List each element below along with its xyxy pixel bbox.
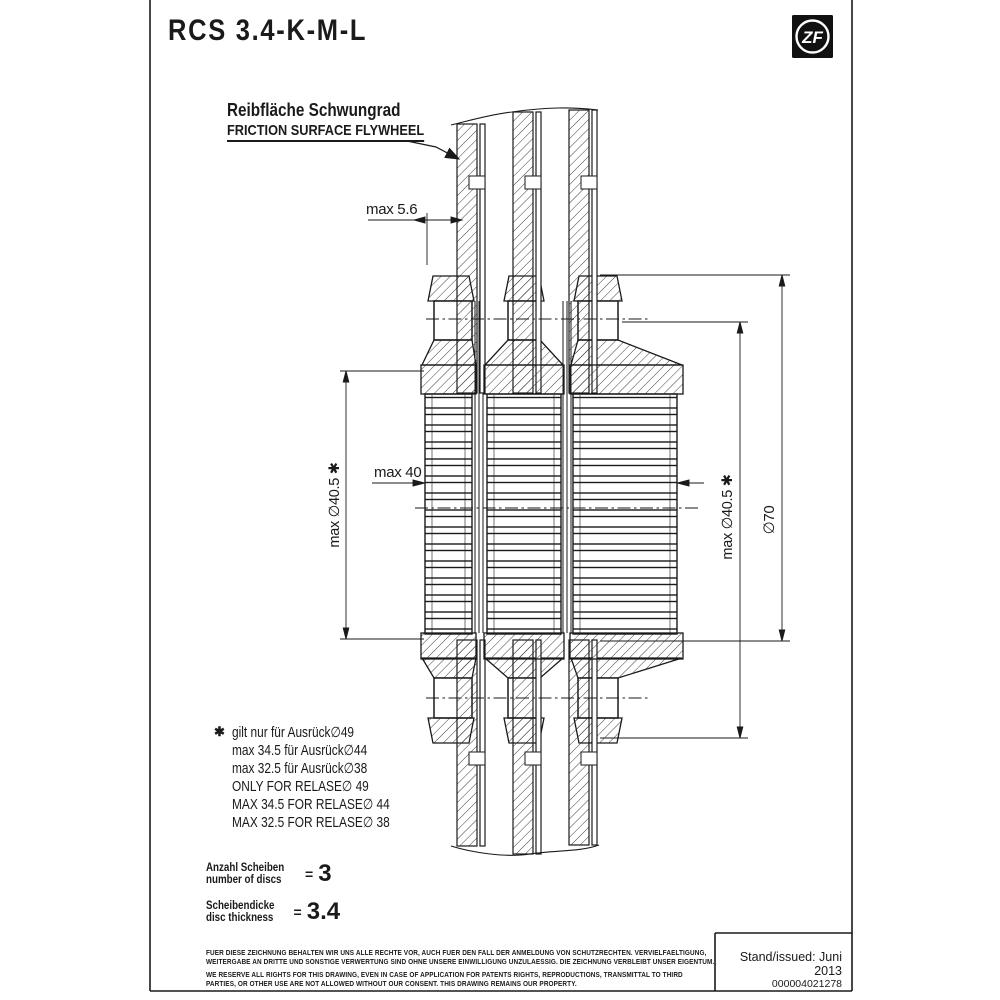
document-number: 000004021278 (715, 978, 842, 990)
spec-label-de: Scheibendicke (206, 900, 274, 912)
footnote-line: max 32.5 für Ausrück∅38 (232, 760, 367, 778)
dim-flywheel-gap: max 5.6 (366, 201, 417, 218)
footnote-line: ONLY FOR RELASE∅ 49 (232, 778, 369, 796)
upper-plates (457, 110, 597, 393)
callout-german: Reibfläche Schwungrad (227, 100, 400, 121)
disclaimer-line: FUER DIESE ZEICHNUNG BEHALTEN WIR UNS AL… (206, 949, 706, 958)
spec-label-en: number of discs (206, 874, 282, 886)
spec-number-of-discs: Anzahl Scheiben number of discs = 3 (206, 860, 332, 888)
dim-pack-width: max 40 (374, 464, 421, 481)
page-title: RCS 3.4-K-M-L (168, 14, 402, 48)
spec-disc-thickness: Scheibendicke disc thickness = 3.4 (206, 898, 340, 926)
disclaimer-line: WEITERGABE AN DRITTE UND SONSTIGE VERWER… (206, 958, 714, 967)
zf-logo: ZF (792, 15, 833, 58)
equals-sign: = (294, 904, 302, 920)
spec-value-thickness: 3.4 (307, 898, 340, 926)
drawing-sheet: ZF (0, 0, 1000, 1000)
disclaimer-line: WE RESERVE ALL RIGHTS FOR THIS DRAWING, … (206, 971, 683, 980)
zf-logo-text: ZF (801, 28, 823, 47)
dim-outer-dia: ∅70 (761, 506, 778, 535)
footnote-marker: ✱ (214, 724, 232, 832)
lower-plates (457, 640, 597, 854)
footnote-line: max 34.5 für Ausrück∅44 (232, 742, 367, 760)
disclaimer-line: PARTIES, OR OTHER USE ARE NOT ALLOWED WI… (206, 980, 577, 989)
equals-sign: = (305, 866, 313, 882)
spec-label-en: disc thickness (206, 912, 273, 924)
title-block: Stand/issued: Juni 2013 000004021278 (715, 950, 842, 990)
friction-pack (425, 394, 677, 634)
flywheel-callout: Reibfläche Schwungrad FRICTION SURFACE F… (227, 100, 459, 142)
callout-english: FRICTION SURFACE FLYWHEEL (227, 122, 424, 142)
dim-hub-dia-left: max ∅40.5 ✱ (327, 462, 343, 547)
spec-value-discs: 3 (318, 860, 331, 888)
footnote-line: MAX 32.5 FOR RELASE∅ 38 (232, 814, 390, 832)
legal-disclaimer: FUER DIESE ZEICHNUNG BEHALTEN WIR UNS AL… (206, 949, 686, 989)
dim-hub-dia-right: max ∅40.5 ✱ (720, 474, 736, 559)
technical-drawing: ZF (0, 0, 1000, 1000)
release-footnote: ✱ gilt nur für Ausrück∅49 max 34.5 für A… (214, 724, 424, 832)
issue-date: Stand/issued: Juni 2013 (715, 950, 842, 978)
footnote-line: gilt nur für Ausrück∅49 (232, 724, 354, 742)
footnote-line: MAX 34.5 FOR RELASE∅ 44 (232, 796, 390, 814)
flywheel-leader-arrow (407, 141, 459, 159)
spec-label-de: Anzahl Scheiben (206, 862, 284, 874)
